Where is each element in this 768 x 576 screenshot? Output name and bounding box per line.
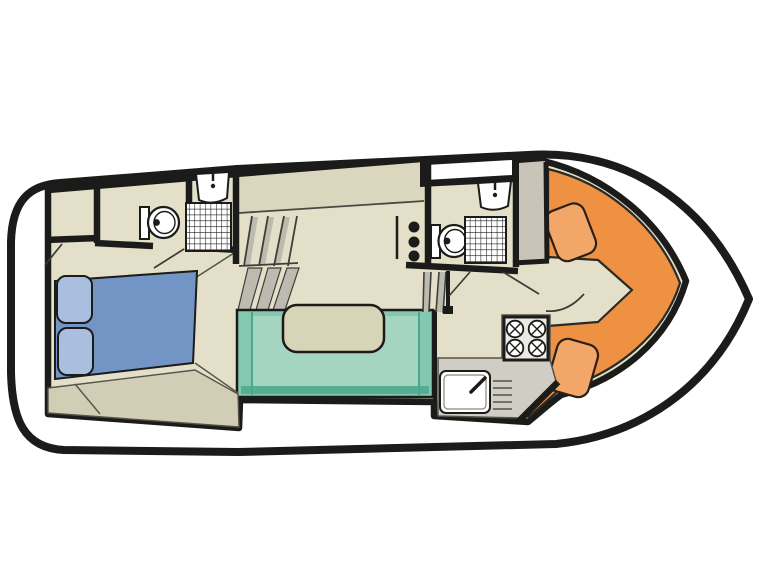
floor-plan-canvas bbox=[0, 0, 768, 576]
settee-front-rail bbox=[241, 386, 429, 394]
pillow-top bbox=[57, 276, 92, 323]
step-ladder-dots bbox=[409, 222, 420, 262]
lower-steps bbox=[423, 271, 453, 314]
salon-table bbox=[283, 305, 384, 352]
aft-shower bbox=[186, 203, 231, 251]
aft-basin-drain bbox=[211, 184, 215, 188]
boat-floor-plan bbox=[0, 0, 768, 576]
aft-toilet bbox=[140, 207, 179, 239]
pillow-bottom bbox=[58, 328, 93, 375]
mid-toilet bbox=[431, 225, 470, 258]
mid-shower bbox=[465, 217, 506, 263]
wardrobe-body bbox=[519, 161, 547, 264]
mid-basin-drain bbox=[493, 193, 497, 197]
galley-sink bbox=[440, 371, 490, 413]
